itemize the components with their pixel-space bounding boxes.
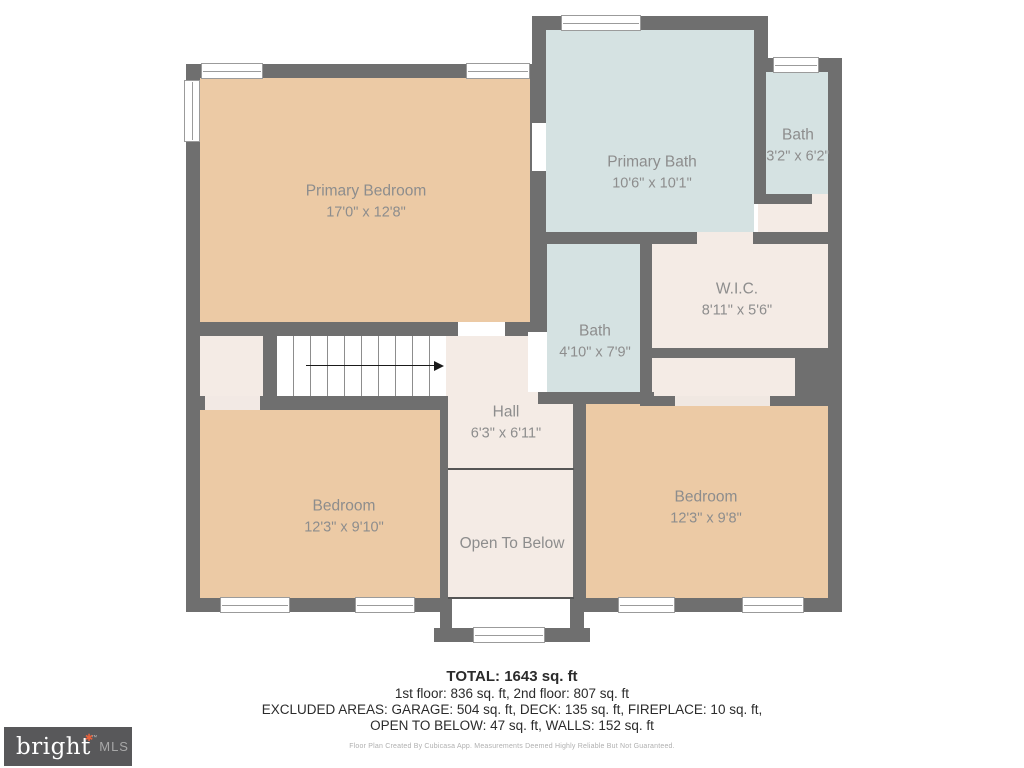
wall-bath-middle-bottom: [538, 392, 654, 404]
logo-trademark: ™: [91, 735, 97, 741]
excluded-areas-line1: EXCLUDED AREAS: GARAGE: 504 sq. ft, DECK…: [0, 702, 1024, 718]
open-below-bottom-line: [448, 597, 574, 599]
floor-areas: 1st floor: 836 sq. ft, 2nd floor: 807 sq…: [0, 686, 1024, 702]
room-dims: 12'3" x 9'10": [304, 518, 384, 539]
wall-bath-divider-vert: [754, 72, 766, 196]
room-dims: 12'3" x 9'8": [670, 509, 741, 530]
room-name: Bedroom: [670, 486, 741, 508]
wall-bedroom-left-right: [440, 396, 448, 612]
window: [618, 597, 675, 613]
room-name: Bedroom: [304, 495, 384, 517]
window: [220, 597, 290, 613]
room-dims: 8'11" x 5'6": [702, 301, 772, 322]
room-dims: 3'2" x 6'2": [766, 147, 829, 168]
window: [201, 63, 263, 79]
room-name: Bath: [766, 124, 829, 146]
door-opening-bath-middle: [528, 332, 547, 392]
wall-small-bath-bottom: [754, 194, 842, 204]
room-label-bath-small: Bath 3'2" x 6'2": [766, 124, 829, 167]
wall-left-outer: [186, 64, 200, 612]
total-area: TOTAL: 1643 sq. ft: [0, 668, 1024, 686]
wall-primary-bath-left-upper: [532, 16, 546, 78]
room-primary-bath: [546, 30, 754, 234]
wall-closet-stairs-divider: [263, 336, 277, 396]
room-bath-middle: [547, 244, 640, 394]
logo-brand-text: bright: [16, 734, 91, 760]
room-name: Bath: [559, 320, 630, 342]
window: [473, 627, 545, 643]
room-label-primary-bedroom: Primary Bedroom 17'0" x 12'8": [306, 180, 427, 223]
room-label-primary-bath: Primary Bath 10'6" x 10'1": [607, 151, 697, 194]
wall-right-outer: [828, 58, 842, 612]
room-label-bedroom-left: Bedroom 12'3" x 9'10": [304, 495, 384, 538]
room-label-open-to-below: Open To Below: [460, 533, 565, 555]
excluded-areas-line2: OPEN TO BELOW: 47 sq. ft, WALLS: 152 sq.…: [0, 718, 1024, 734]
room-closet-left: [200, 336, 263, 398]
door-opening-closet-wic: [675, 396, 770, 406]
door-opening-primary-bath: [532, 123, 546, 171]
door-opening-wic: [697, 232, 753, 244]
room-dims: 4'10" x 7'9": [559, 343, 630, 364]
room-dims: 10'6" x 10'1": [607, 174, 697, 195]
door-opening-closet-left: [205, 396, 260, 410]
window: [773, 57, 819, 73]
room-name: Hall: [471, 401, 541, 423]
room-name: Primary Bath: [607, 151, 697, 173]
disclaimer-text: Floor Plan Created By Cubicasa App. Meas…: [0, 743, 1024, 750]
bright-mls-logo: bright ✱ ™ MLS: [4, 727, 132, 766]
room-name: Primary Bedroom: [306, 180, 427, 202]
open-below-top-line: [448, 468, 574, 470]
room-label-bedroom-right: Bedroom 12'3" x 9'8": [670, 486, 741, 529]
window: [355, 597, 415, 613]
room-dims: 17'0" x 12'8": [306, 203, 427, 224]
floor-plan: Primary Bedroom 17'0" x 12'8" Primary Ba…: [0, 0, 1024, 768]
door-opening-hall: [458, 322, 505, 336]
room-closet-below-wic: [652, 358, 795, 396]
logo-suffix-text: MLS: [99, 739, 129, 754]
room-dims: 6'3" x 6'11": [471, 424, 541, 445]
wall-primary-bath-bottom: [532, 232, 842, 244]
stairs: [276, 336, 446, 396]
door-opening-small-bath: [812, 194, 828, 204]
stairs-direction-line: [306, 365, 434, 366]
window: [561, 15, 641, 31]
room-name: Open To Below: [460, 533, 565, 555]
room-label-wic: W.I.C. 8'11" x 5'6": [702, 278, 772, 321]
room-name: W.I.C.: [702, 278, 772, 300]
wall-bath-wic-divider: [640, 244, 652, 398]
area-summary: TOTAL: 1643 sq. ft 1st floor: 836 sq. ft…: [0, 668, 1024, 734]
foyer-bump: [448, 598, 574, 630]
room-label-hall: Hall 6'3" x 6'11": [471, 401, 541, 444]
window: [466, 63, 530, 79]
stairs-direction-arrow: [434, 361, 444, 371]
room-label-bath-middle: Bath 4'10" x 7'9": [559, 320, 630, 363]
window: [742, 597, 804, 613]
wall-open-below-right: [573, 403, 586, 612]
window: [184, 80, 200, 142]
